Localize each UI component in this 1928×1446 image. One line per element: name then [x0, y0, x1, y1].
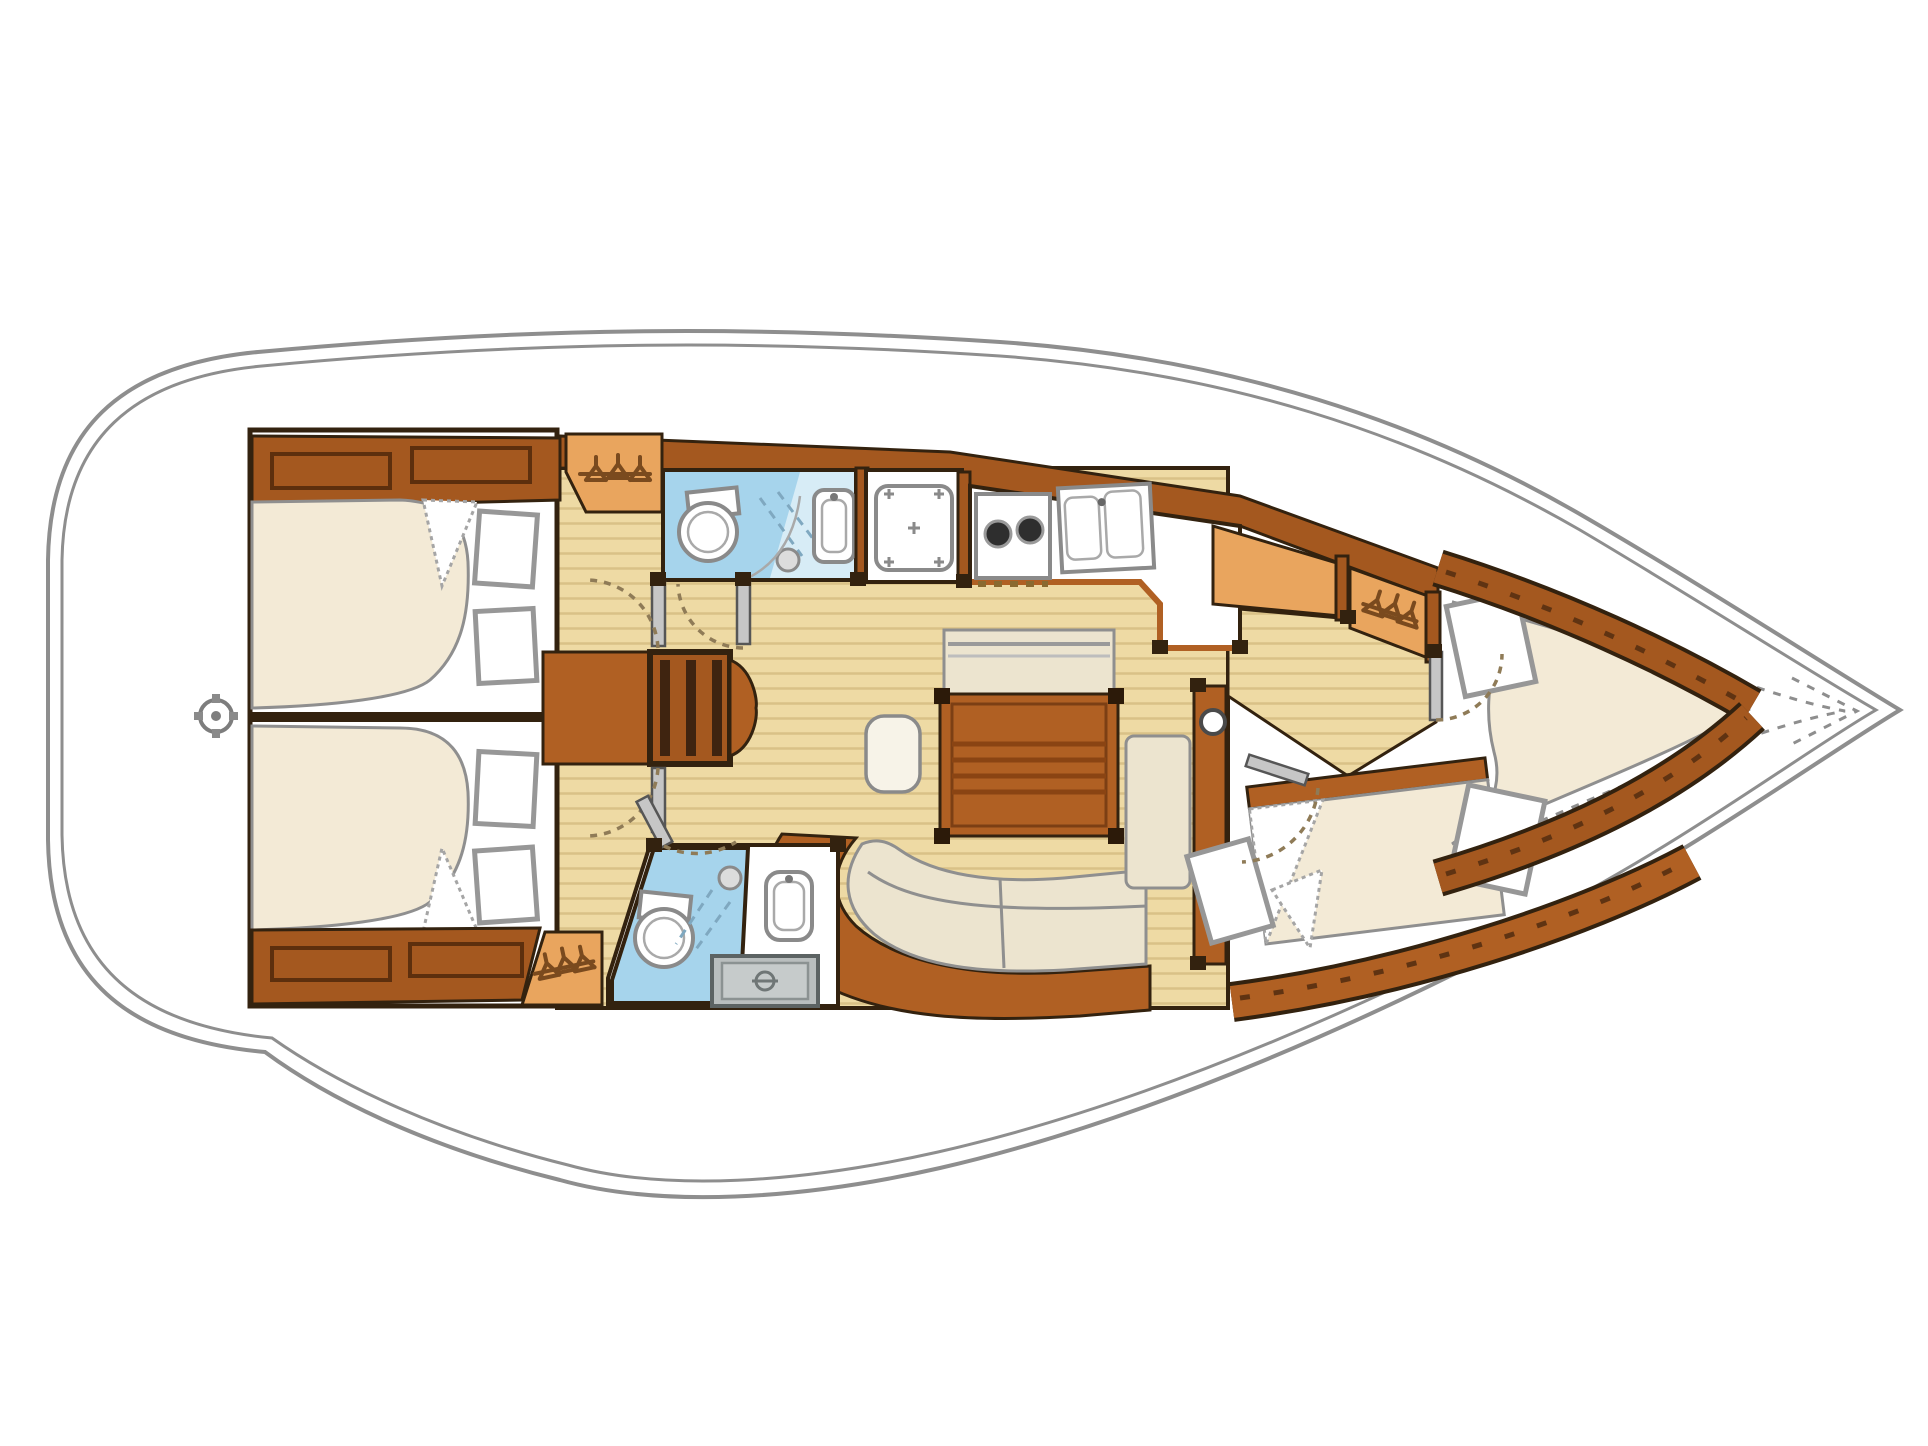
- step-rung: [686, 660, 696, 756]
- aft-cabin-port: [252, 436, 560, 708]
- sink-icon: [766, 872, 812, 940]
- settee-end-backrest: [1126, 736, 1190, 888]
- pillow: [475, 609, 537, 684]
- forward-head: [608, 845, 838, 1006]
- shower-stall: [866, 470, 970, 584]
- aft-cabins: [250, 430, 560, 1006]
- galley-sink: [1058, 484, 1154, 573]
- starboard-locker-shelf: [252, 928, 540, 1004]
- shower-head-icon: [719, 867, 741, 889]
- floor-plan-canvas: [0, 0, 1928, 1446]
- mast-icon: [1201, 710, 1225, 734]
- pillow: [475, 847, 538, 923]
- step-rung: [712, 660, 722, 756]
- aft-cabin-starboard: [252, 726, 540, 1004]
- sink-icon: [814, 490, 854, 562]
- saloon-stool: [866, 716, 920, 792]
- cabin-divider-bulkhead: [250, 712, 557, 722]
- aft-head-door-leaf: [737, 582, 750, 644]
- table-top: [940, 694, 1118, 836]
- vberth-cabin-door-leaf: [1430, 652, 1442, 720]
- pillow: [475, 511, 538, 587]
- saloon-table: [934, 630, 1124, 844]
- table-folded-leaf: [944, 630, 1114, 694]
- hanging-locker-aft-top: [566, 434, 662, 512]
- port-aft-cabin-door-leaf: [652, 582, 665, 646]
- companionway: [543, 652, 756, 764]
- stove: [976, 494, 1050, 584]
- vanity-unit: [712, 956, 818, 1006]
- stove-burner-icon: [1017, 517, 1043, 543]
- aft-head: [663, 468, 868, 582]
- pillow: [475, 752, 537, 827]
- engine-box: [543, 652, 653, 764]
- boat-floor-plan: [0, 0, 1928, 1446]
- toilet-icon: [679, 487, 739, 561]
- stove-burner-icon: [985, 521, 1011, 547]
- step-rung: [660, 660, 670, 756]
